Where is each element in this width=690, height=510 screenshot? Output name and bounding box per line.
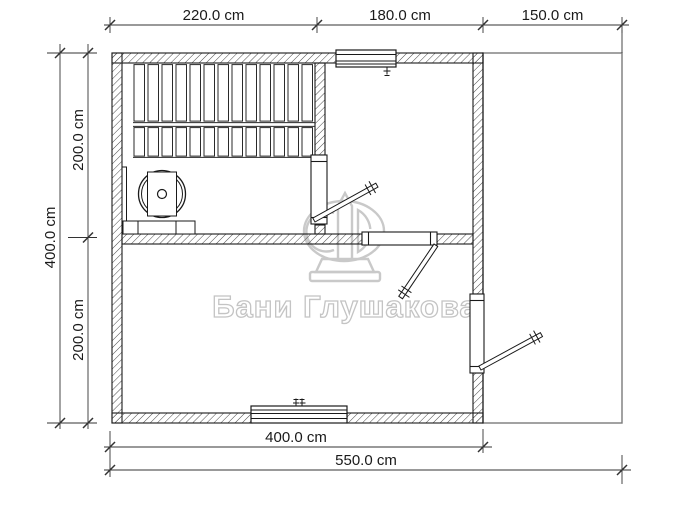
window-bottom	[251, 399, 347, 424]
bench-lower	[133, 127, 315, 157]
door-frames	[311, 155, 484, 373]
wall-top-right	[395, 53, 483, 63]
dim-label-top-2: 180.0 cm	[369, 7, 431, 24]
wall-middle-left	[122, 234, 362, 244]
dim-label-left-total: 400.0 cm	[42, 207, 59, 269]
door-leaves	[310, 179, 544, 374]
wall-sauna-right	[315, 63, 325, 155]
wall-middle-right	[437, 234, 473, 244]
wall-top-left	[112, 53, 337, 63]
watermark-text: Бани Глушакова	[212, 289, 477, 324]
tub	[122, 167, 195, 234]
watermark-base	[310, 272, 380, 281]
dim-label-bottom-inner: 400.0 cm	[265, 429, 327, 446]
wall-left	[112, 53, 122, 423]
dim-label-top-1: 220.0 cm	[183, 7, 245, 24]
wall-right-upper	[473, 53, 483, 294]
wall-sauna-right-stub	[315, 225, 325, 234]
dim-label-left-upper: 200.0 cm	[70, 109, 87, 171]
window-top-handle	[384, 67, 391, 76]
wall-bottom-left	[112, 413, 252, 423]
dimension-bottom: 400.0 cm 550.0 cm	[104, 429, 631, 484]
floor-plan: Бани Глушакова	[0, 0, 690, 510]
tub-platform	[123, 221, 195, 234]
tub-backing-panel	[122, 167, 127, 221]
dimension-top: 220.0 cm 180.0 cm 150.0 cm	[104, 7, 629, 53]
dim-label-bottom-total: 550.0 cm	[335, 452, 397, 469]
bench-upper	[133, 64, 315, 122]
wall-bottom-right	[347, 413, 483, 423]
door-leaf-terrace	[476, 328, 544, 373]
window-bottom-handle	[293, 399, 306, 407]
door-frame-hall	[362, 232, 437, 245]
terrace-outline	[483, 53, 622, 423]
dim-label-left-lower: 200.0 cm	[70, 299, 87, 361]
tub-center-hole	[158, 190, 167, 199]
floor-plan-canvas: Бани Глушакова	[0, 0, 690, 510]
door-frame-terrace	[470, 294, 484, 373]
sauna-benches	[133, 64, 315, 157]
dim-label-top-3: 150.0 cm	[522, 7, 584, 24]
dimension-left: 400.0 cm 200.0 cm 200.0 cm	[42, 44, 97, 429]
window-top	[336, 50, 396, 76]
